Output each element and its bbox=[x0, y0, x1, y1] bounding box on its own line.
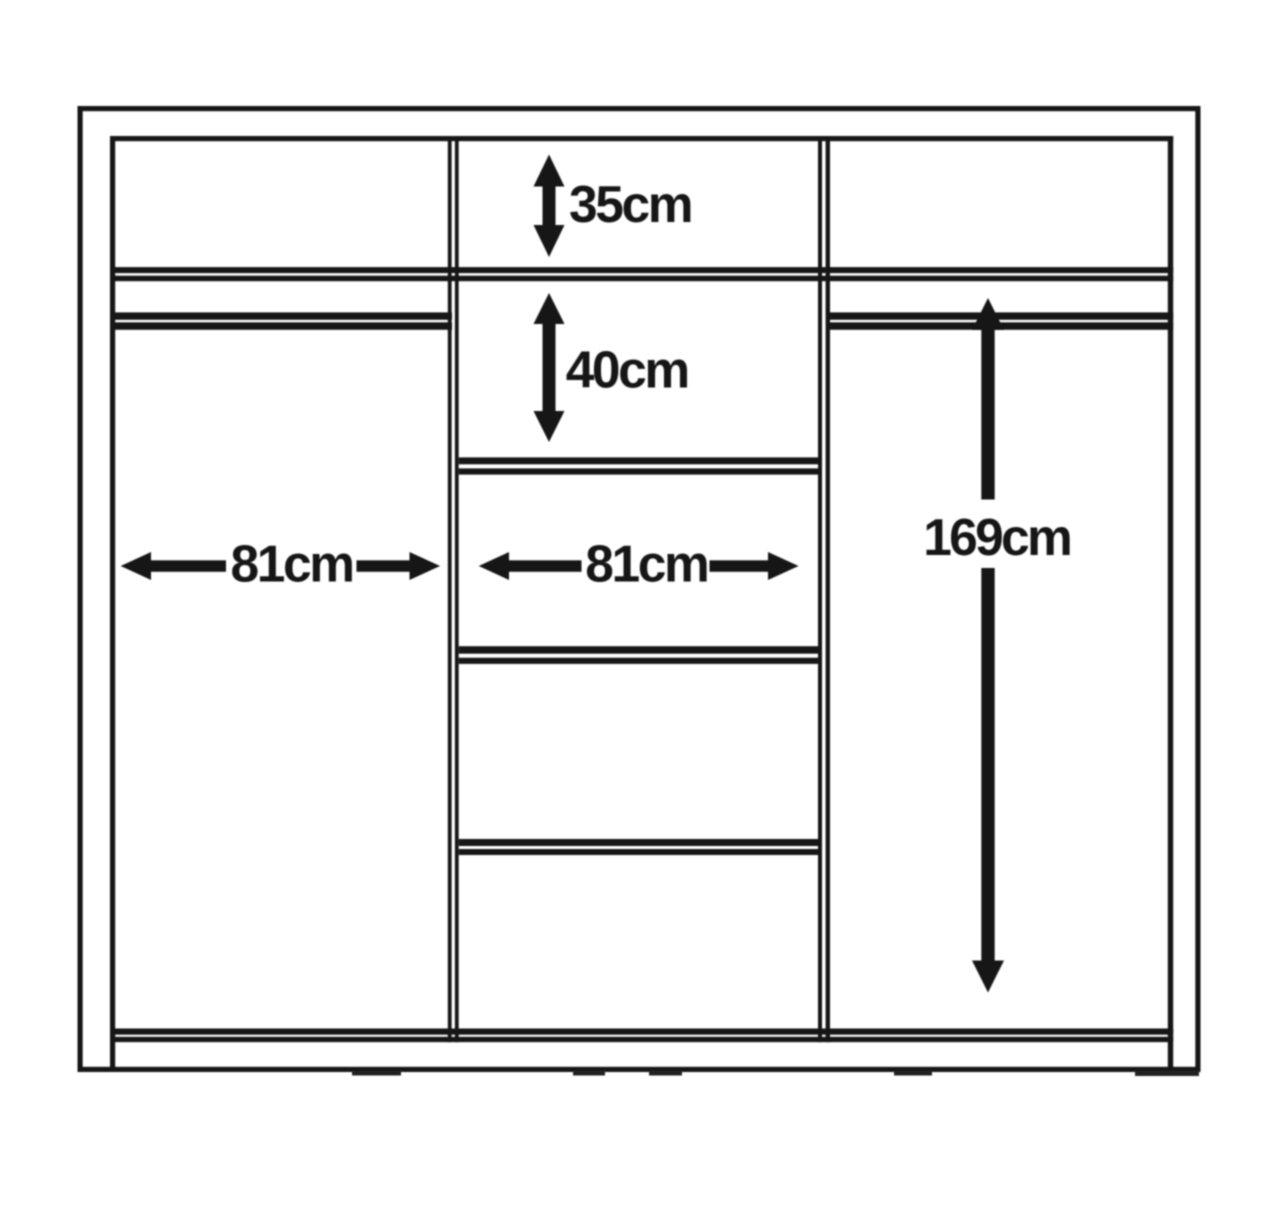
svg-text:35cm: 35cm bbox=[569, 175, 691, 233]
svg-text:169cm: 169cm bbox=[923, 508, 1070, 566]
svg-text:40cm: 40cm bbox=[566, 341, 688, 399]
svg-text:81cm: 81cm bbox=[585, 534, 707, 592]
svg-text:81cm: 81cm bbox=[231, 534, 353, 592]
